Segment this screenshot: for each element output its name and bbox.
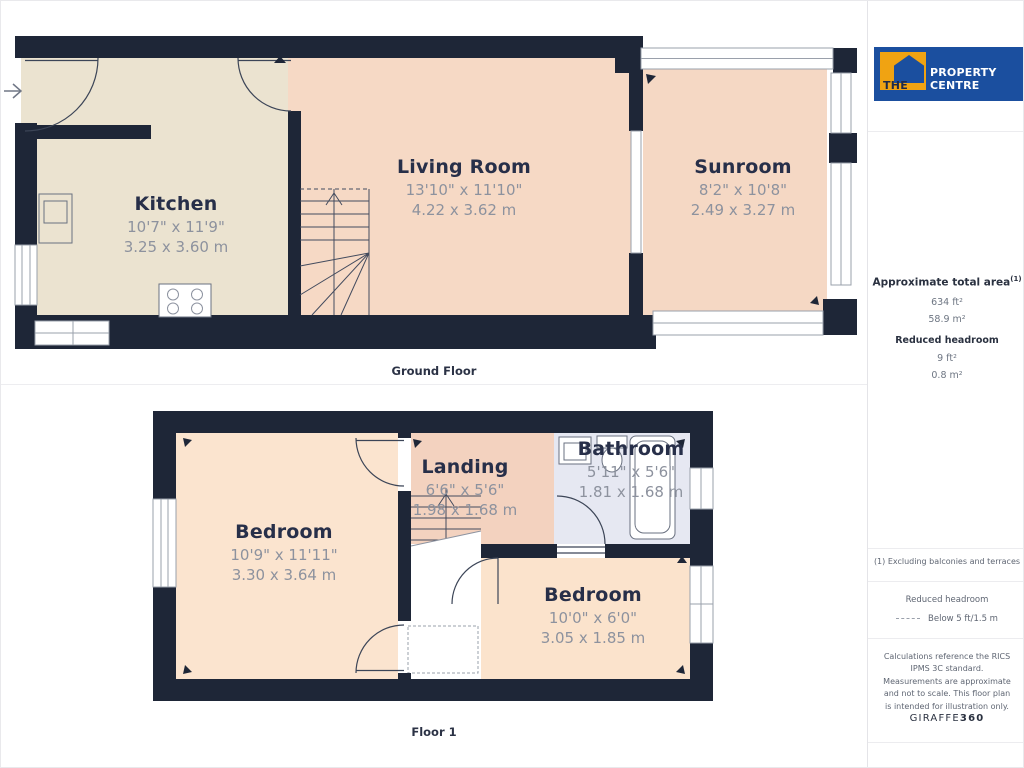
floor-1-plan bbox=[1, 406, 861, 706]
total-area-m: 58.9 m² bbox=[868, 314, 1024, 325]
room-dim-metric: 1.81 x 1.68 m bbox=[578, 483, 685, 503]
footnote-mark: (1) bbox=[1010, 275, 1021, 283]
reduced-headroom-dash-icon bbox=[896, 618, 920, 619]
room-dim-imperial: 6'6" x 5'6" bbox=[413, 481, 518, 501]
room-dim-imperial: 10'7" x 11'9" bbox=[124, 218, 229, 238]
total-area-block: Approximate total area(1) 634 ft² 58.9 m… bbox=[868, 275, 1024, 387]
room-dim-metric: 3.30 x 3.64 m bbox=[230, 566, 337, 586]
room-name: Bedroom bbox=[541, 584, 646, 606]
ground-floor-caption: Ground Floor bbox=[392, 364, 477, 378]
room-name: Bathroom bbox=[578, 438, 685, 460]
floor-1-caption: Floor 1 bbox=[411, 725, 456, 739]
sidebar-divider bbox=[868, 638, 1024, 639]
logo-text-rest: PROPERTY CENTRE bbox=[930, 66, 1024, 92]
sidebar-divider bbox=[868, 581, 1024, 582]
legend-item-text: Below 5 ft/1.5 m bbox=[928, 614, 998, 624]
total-area-heading-text: Approximate total area bbox=[872, 277, 1010, 289]
entrance-arrow-icon bbox=[4, 84, 21, 98]
room-dim-metric: 3.05 x 1.85 m bbox=[541, 629, 646, 649]
room-label-bathroom: Bathroom 5'11" x 5'6" 1.81 x 1.68 m bbox=[578, 438, 685, 502]
room-dim-imperial: 10'9" x 11'11" bbox=[230, 546, 337, 566]
sidebar-divider bbox=[868, 548, 1024, 549]
room-label-kitchen: Kitchen 10'7" x 11'9" 3.25 x 3.60 m bbox=[124, 193, 229, 257]
room-name: Sunroom bbox=[691, 156, 796, 178]
logo-text-the: THE bbox=[883, 79, 908, 92]
legend-block: Reduced headroom Below 5 ft/1.5 m bbox=[868, 595, 1024, 624]
room-label-landing: Landing 6'6" x 5'6" 1.98 x 1.68 m bbox=[413, 456, 518, 520]
info-sidebar: THE PROPERTY CENTRE Approximate total ar… bbox=[867, 1, 1024, 768]
room-label-sunroom: Sunroom 8'2" x 10'8" 2.49 x 3.27 m bbox=[691, 156, 796, 220]
giraffe360-brand: GIRAFFE360 bbox=[868, 713, 1024, 724]
room-name: Bedroom bbox=[230, 521, 337, 543]
room-dim-metric: 1.98 x 1.68 m bbox=[413, 501, 518, 521]
floorplan-page: Kitchen 10'7" x 11'9" 3.25 x 3.60 m Livi… bbox=[0, 0, 1024, 768]
room-label-bedroom-1: Bedroom 10'9" x 11'11" 3.30 x 3.64 m bbox=[230, 521, 337, 585]
reduced-headroom-ft: 9 ft² bbox=[868, 353, 1024, 364]
room-name: Living Room bbox=[397, 156, 531, 178]
room-dim-metric: 3.25 x 3.60 m bbox=[124, 238, 229, 258]
room-dim-metric: 2.49 x 3.27 m bbox=[691, 201, 796, 221]
reduced-headroom-dashed-area bbox=[408, 626, 478, 673]
room-name: Landing bbox=[413, 456, 518, 478]
room-dim-imperial: 13'10" x 11'10" bbox=[397, 181, 531, 201]
property-centre-logo: THE PROPERTY CENTRE bbox=[874, 47, 1024, 101]
legend-heading: Reduced headroom bbox=[868, 595, 1024, 605]
room-dim-imperial: 8'2" x 10'8" bbox=[691, 181, 796, 201]
room-label-bedroom-2: Bedroom 10'0" x 6'0" 3.05 x 1.85 m bbox=[541, 584, 646, 648]
total-area-heading: Approximate total area(1) bbox=[868, 275, 1024, 289]
room-dim-metric: 4.22 x 3.62 m bbox=[397, 201, 531, 221]
sliding-door bbox=[631, 131, 641, 253]
total-area-ft: 634 ft² bbox=[868, 297, 1024, 308]
giraffe-text: GIRAFFE bbox=[910, 713, 960, 724]
room-label-living-room: Living Room 13'10" x 11'10" 4.22 x 3.62 … bbox=[397, 156, 531, 220]
reduced-headroom-heading: Reduced headroom bbox=[868, 335, 1024, 346]
bathroom-doorway bbox=[557, 544, 605, 558]
sidebar-divider bbox=[868, 742, 1024, 743]
giraffe-360-text: 360 bbox=[960, 713, 984, 724]
room-dim-imperial: 10'0" x 6'0" bbox=[541, 609, 646, 629]
sidebar-divider bbox=[868, 131, 1024, 132]
footnote-text: (1) Excluding balconies and terraces bbox=[868, 557, 1024, 566]
reduced-headroom-m: 0.8 m² bbox=[868, 370, 1024, 381]
room-dim-imperial: 5'11" x 5'6" bbox=[578, 463, 685, 483]
room-name: Kitchen bbox=[124, 193, 229, 215]
disclaimer-text: Calculations reference the RICS IPMS 3C … bbox=[868, 651, 1024, 713]
floors-divider-line bbox=[1, 384, 867, 385]
legend-item: Below 5 ft/1.5 m bbox=[868, 614, 1024, 624]
stove-icon bbox=[159, 284, 211, 317]
